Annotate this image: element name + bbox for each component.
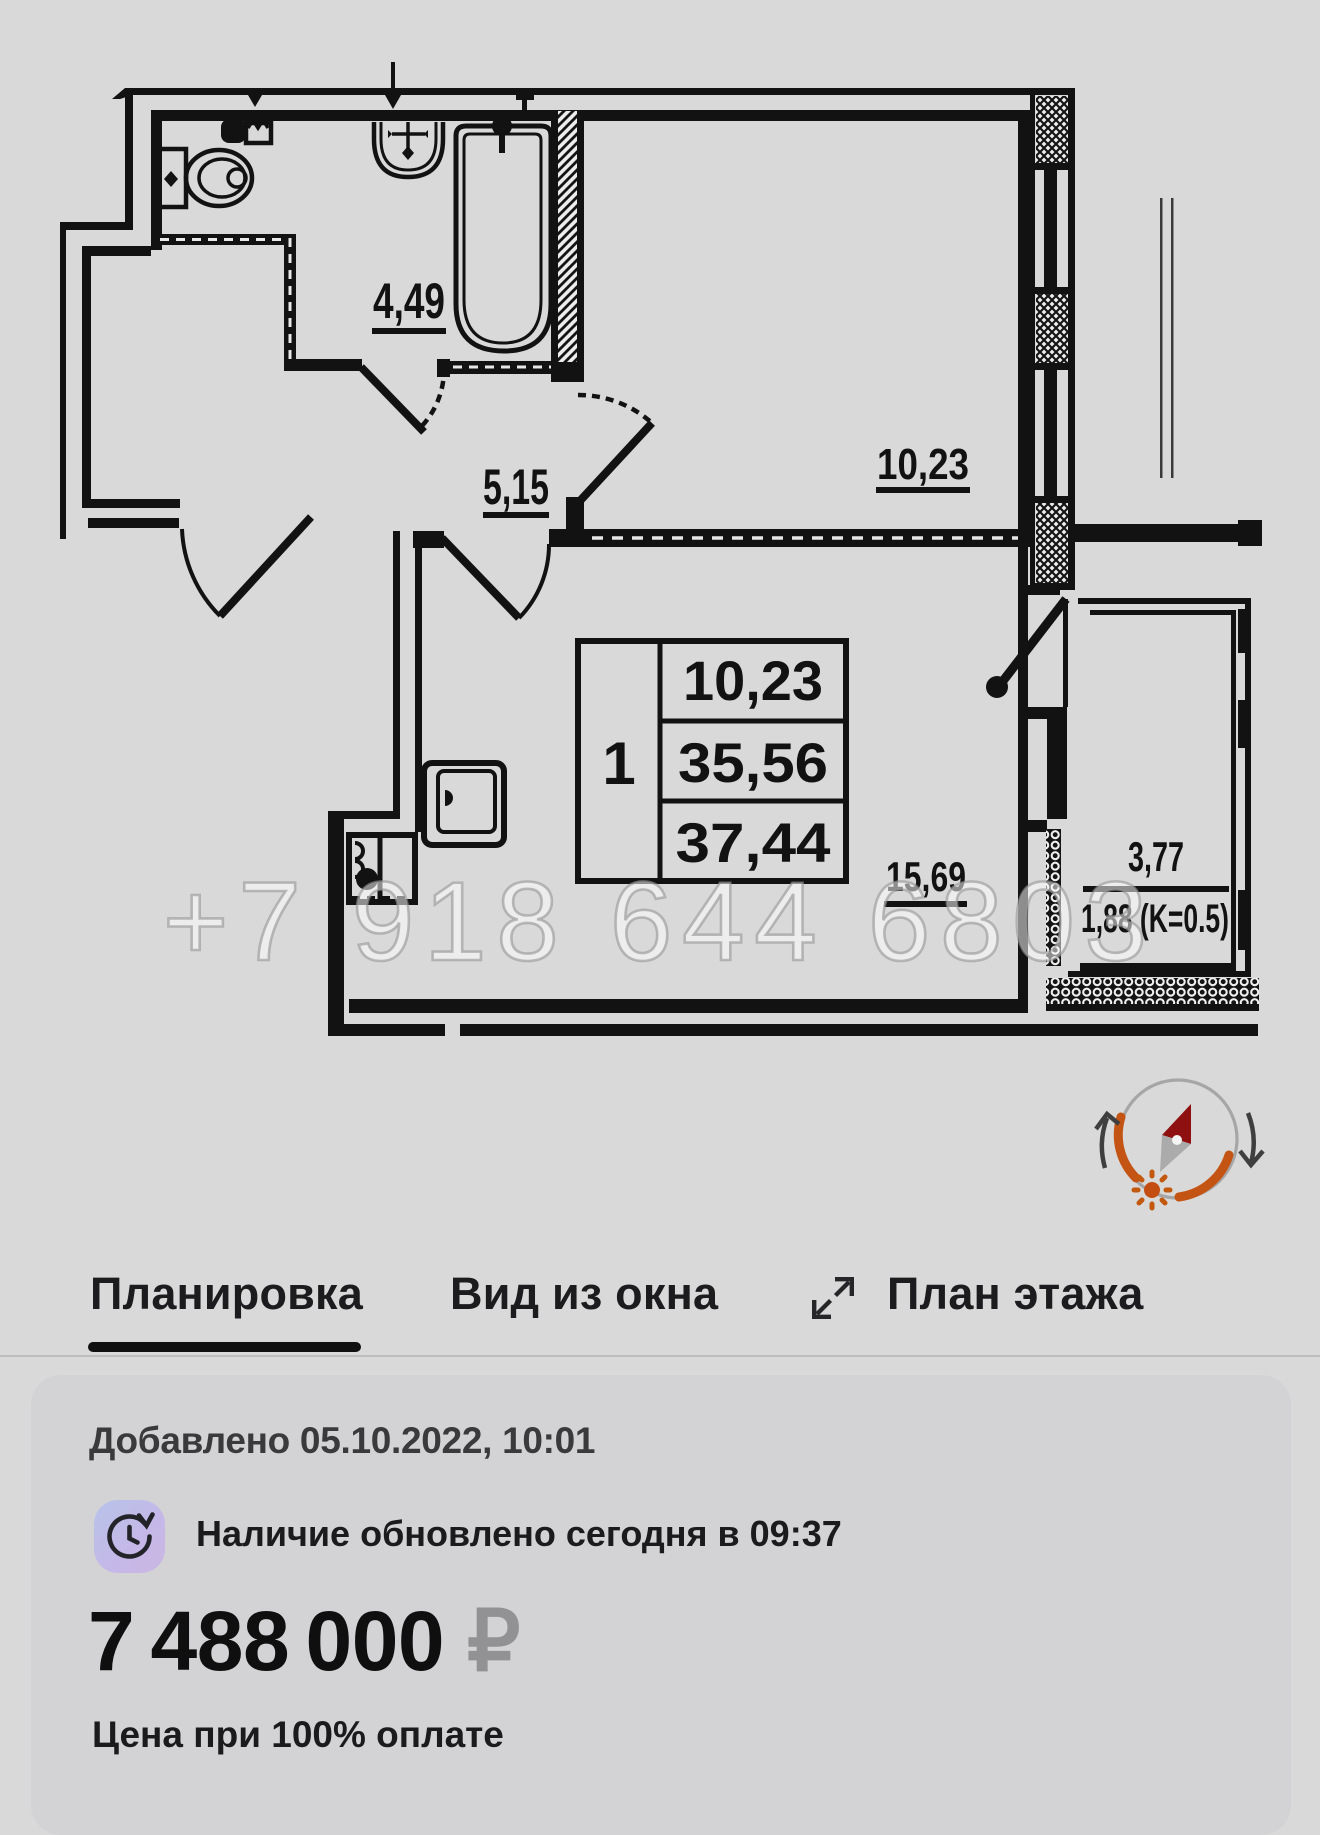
svg-text:10,23: 10,23 (683, 649, 823, 712)
svg-text:35,56: 35,56 (678, 731, 828, 794)
svg-text:4,49: 4,49 (373, 273, 445, 329)
svg-text:10,23: 10,23 (877, 440, 969, 489)
svg-text:1: 1 (602, 730, 635, 797)
svg-text:+7 918 644 6803: +7 918 644 6803 (163, 859, 1157, 984)
svg-text:5,15: 5,15 (483, 459, 549, 515)
